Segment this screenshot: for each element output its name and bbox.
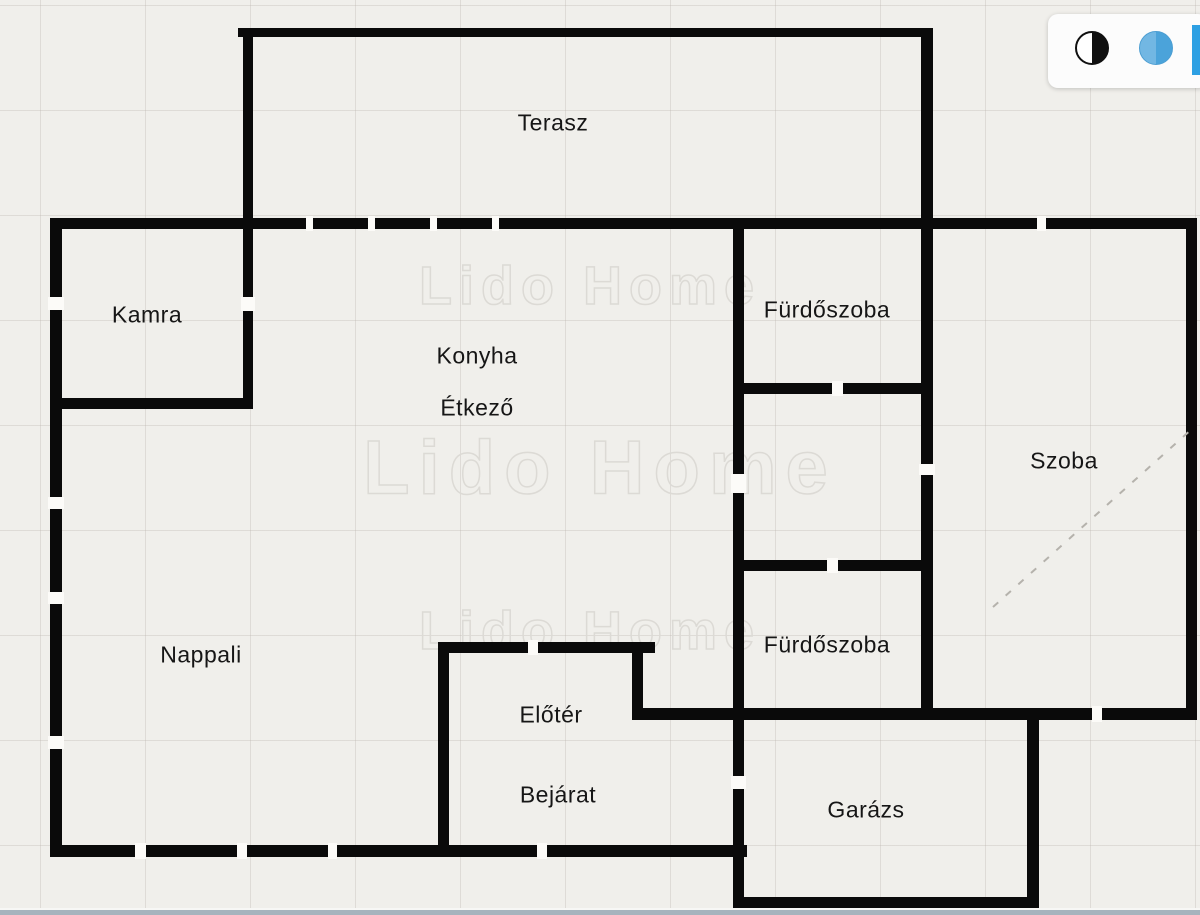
room-label-terasz: Terasz: [518, 110, 589, 137]
room-label-eloter: Előtér: [519, 702, 582, 729]
room-label-bejarat: Bejárat: [520, 782, 596, 809]
room-label-furdoszoba-2: Fürdőszoba: [764, 632, 890, 659]
image-viewer-toolbar: [1048, 14, 1200, 88]
room-label-nappali: Nappali: [160, 642, 242, 669]
bottom-edge-strip: [0, 908, 1200, 915]
room-label-kamra: Kamra: [112, 302, 182, 329]
room-label-furdoszoba-1: Fürdőszoba: [764, 297, 890, 324]
room-labels-layer: TeraszKamraKonyhaÉtkezőFürdőszobaSzobaNa…: [0, 0, 1200, 915]
room-label-szoba: Szoba: [1030, 448, 1098, 475]
room-label-etkezo: Étkező: [440, 395, 513, 422]
toolbar-edge-button[interactable]: [1192, 25, 1200, 75]
room-label-garazs: Garázs: [827, 797, 904, 824]
contrast-icon[interactable]: [1075, 31, 1109, 65]
blue-circle-icon[interactable]: [1139, 31, 1173, 65]
room-label-konyha: Konyha: [436, 343, 517, 370]
